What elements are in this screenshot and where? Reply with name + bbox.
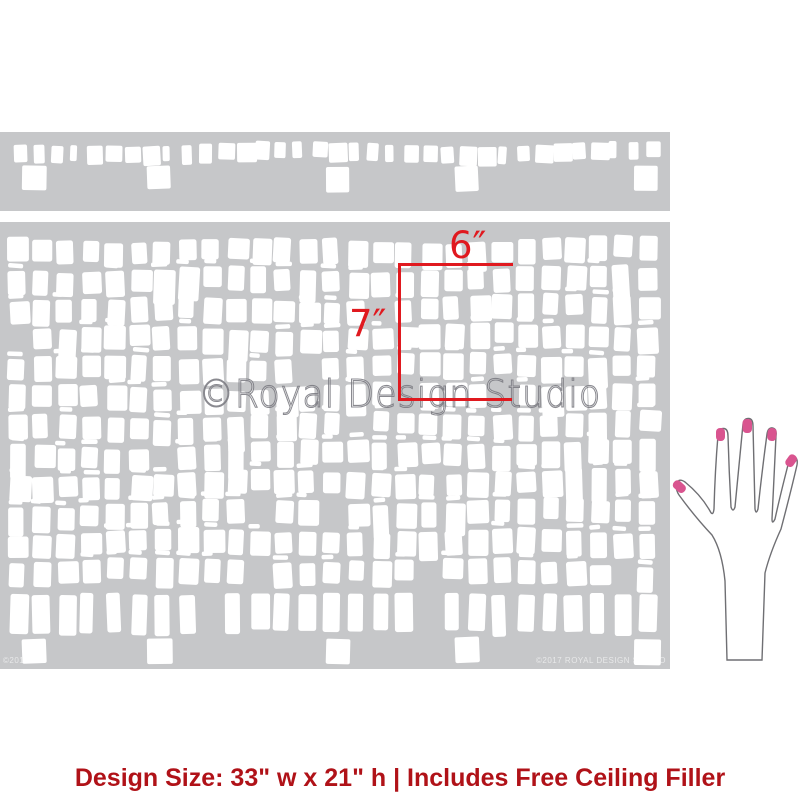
ceiling-filler-pattern	[0, 132, 670, 211]
hand-outline	[676, 418, 797, 660]
ceiling-filler-strip	[0, 132, 670, 211]
product-image-page: { "colors": { "stencil_gray": "#c6c7c9",…	[0, 0, 800, 800]
dimension-bottom-line	[398, 398, 512, 401]
corner-right-label: ©2017 ROYAL DESIGN STUDIO	[536, 657, 666, 665]
fingernails	[671, 419, 798, 495]
caption: Design Size: 33" w x 21" h | Includes Fr…	[0, 764, 800, 793]
dimension-width-label: 6″	[449, 227, 486, 264]
main-stencil-panel: ©2011 ©2017 ROYAL DESIGN STUDIO	[0, 222, 670, 669]
dimension-height-line	[398, 264, 401, 401]
main-stencil-pattern-svg	[0, 222, 670, 669]
corner-left-label: ©2011	[3, 657, 29, 665]
dimension-height-label: 7″	[349, 305, 386, 342]
hand-illustration	[667, 411, 800, 663]
